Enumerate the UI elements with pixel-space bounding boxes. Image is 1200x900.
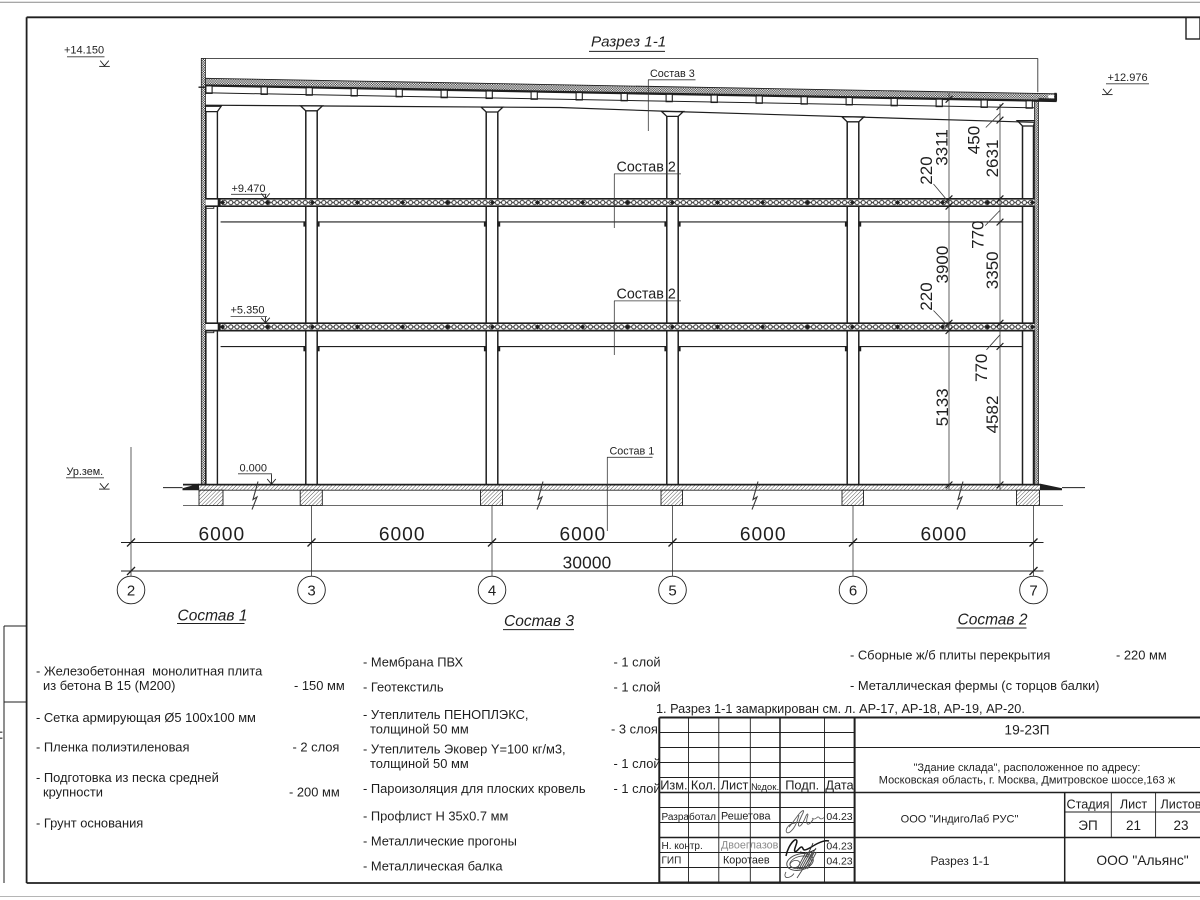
svg-text:- Утеплитель Эковер Y=100 кг/м: - Утеплитель Эковер Y=100 кг/м3,: [363, 742, 566, 757]
svg-text:770: 770: [969, 221, 988, 249]
svg-text:- Пароизоляция для плоских кро: - Пароизоляция для плоских кровель: [363, 781, 586, 796]
svg-text:- Геотекстиль: - Геотекстиль: [363, 680, 444, 695]
svg-text:из бетона В 15 (М200): из бетона В 15 (М200): [43, 678, 175, 693]
svg-text:220: 220: [917, 156, 936, 184]
svg-text:770: 770: [972, 354, 991, 382]
svg-text:30000: 30000: [563, 553, 612, 573]
svg-text:450: 450: [965, 126, 984, 154]
svg-text:Разрез 1-1: Разрез 1-1: [591, 34, 666, 51]
svg-text:- Профлист Н 35х0.7 мм: - Профлист Н 35х0.7 мм: [363, 809, 508, 824]
svg-text:2631: 2631: [983, 140, 1002, 178]
svg-text:Подп.: Подп.: [785, 777, 819, 792]
svg-text:- Пленка полиэтиленовая: - Пленка полиэтиленовая: [36, 740, 189, 755]
svg-text:ГИП: ГИП: [662, 855, 682, 866]
svg-text:6000: 6000: [198, 525, 245, 546]
svg-text:04.23: 04.23: [826, 855, 852, 867]
svg-text:- Металлическая балка: - Металлическая балка: [363, 859, 503, 874]
svg-text:- Металлические прогоны: - Металлические прогоны: [363, 834, 517, 849]
svg-text:- 1 слой: - 1 слой: [614, 680, 661, 695]
svg-text:- Железобетонная монолитная п: - Железобетонная монолитная плита: [36, 664, 263, 679]
svg-text:толщиной 50 мм: толщиной 50 мм: [370, 722, 469, 737]
svg-text:Ур.зем.: Ур.зем.: [67, 466, 104, 478]
svg-text:толщиной 50 мм: толщиной 50 мм: [370, 756, 469, 771]
svg-text:"Здание склада", расположенное: "Здание склада", расположенное по адресу…: [914, 762, 1141, 774]
svg-text:+12.976: +12.976: [1108, 72, 1148, 84]
svg-text:- Грунт основания: - Грунт основания: [36, 816, 143, 831]
svg-text:6000: 6000: [559, 525, 606, 546]
svg-text:21: 21: [1126, 818, 1141, 833]
svg-text:7: 7: [1029, 582, 1037, 599]
svg-text:Двоеглазов: Двоеглазов: [721, 840, 779, 852]
svg-text:5: 5: [668, 582, 676, 599]
svg-text:Разработал: Разработал: [662, 811, 717, 823]
svg-text:- 1 слой: - 1 слой: [614, 655, 661, 670]
svg-text:6000: 6000: [379, 525, 426, 546]
svg-text:Листов: Листов: [1161, 798, 1200, 812]
svg-text:Кол.: Кол.: [691, 777, 716, 792]
svg-text:Состав 2: Состав 2: [958, 612, 1028, 629]
svg-text:- Сборные ж/б плиты перекрытия: - Сборные ж/б плиты перекрытия: [850, 648, 1050, 663]
svg-text:- 3 слоя: - 3 слоя: [611, 722, 658, 737]
svg-text:Дата: Дата: [825, 777, 854, 792]
svg-text:0.000: 0.000: [240, 463, 268, 475]
svg-text:+9.470: +9.470: [232, 183, 266, 195]
svg-text:6: 6: [849, 582, 857, 599]
svg-text:Решетова: Решетова: [721, 810, 771, 822]
svg-text:Коротаев: Коротаев: [723, 855, 770, 867]
svg-text:Изм.: Изм.: [660, 777, 687, 792]
svg-text:- 2 слоя: - 2 слоя: [293, 740, 340, 755]
svg-text:19-23П: 19-23П: [1004, 723, 1049, 738]
svg-text:- 150 мм: - 150 мм: [294, 678, 345, 693]
svg-text:04.23: 04.23: [826, 811, 852, 823]
svg-text:№док.: №док.: [751, 782, 779, 793]
svg-text:- Сетка армирующая Ø5 100х100: - Сетка армирующая Ø5 100х100 мм: [36, 710, 256, 725]
svg-text:Лист: Лист: [721, 777, 749, 792]
svg-text:Состав 3: Состав 3: [504, 613, 574, 630]
svg-text:- Мембрана ПВХ: - Мембрана ПВХ: [363, 655, 464, 670]
svg-text:Н. контр.: Н. контр.: [662, 841, 703, 852]
svg-text:- 1 слой: - 1 слой: [614, 781, 661, 796]
svg-text:ООО "ИндигоЛаб РУС": ООО "ИндигоЛаб РУС": [901, 813, 1019, 825]
svg-text:04.23: 04.23: [826, 840, 852, 852]
svg-text:Состав 1: Состав 1: [610, 446, 655, 458]
svg-text:Разрез 1-1: Разрез 1-1: [931, 854, 990, 868]
svg-text:3350: 3350: [983, 251, 1002, 289]
svg-text:6000: 6000: [920, 525, 967, 546]
svg-text:220: 220: [917, 282, 936, 310]
svg-text:крупности: крупности: [43, 785, 103, 800]
svg-text:- Металлическая фермы (с торцо: - Металлическая фермы (с торцов балки): [850, 678, 1099, 693]
svg-text:1. Разрез 1-1 замаркирован см.: 1. Разрез 1-1 замаркирован см. л. АР-17,…: [656, 702, 1025, 716]
svg-text:Состав 2: Состав 2: [617, 159, 676, 175]
svg-text:Состав 1: Состав 1: [178, 608, 248, 625]
svg-text:+5.350: +5.350: [231, 305, 265, 317]
svg-text:5133: 5133: [933, 388, 952, 426]
svg-text:ЭП: ЭП: [1078, 818, 1097, 833]
svg-text:Состав 3: Состав 3: [650, 68, 695, 80]
svg-text:+14.150: +14.150: [64, 45, 104, 57]
svg-text:3900: 3900: [933, 246, 952, 284]
svg-text:4582: 4582: [983, 396, 1002, 434]
svg-text:6000: 6000: [740, 525, 787, 546]
svg-text:3: 3: [307, 582, 315, 599]
svg-text:ООО "Альянс": ООО "Альянс": [1096, 853, 1188, 868]
svg-text:23: 23: [1173, 818, 1188, 833]
svg-text:- 1 слой: - 1 слой: [614, 756, 661, 771]
svg-text:Московская область, г. Москва,: Московская область, г. Москва, Дмитровск…: [879, 775, 1176, 787]
svg-text:2: 2: [127, 582, 135, 599]
svg-text:4: 4: [488, 582, 496, 599]
svg-text:Стадия: Стадия: [1067, 798, 1110, 812]
svg-text:- Утеплитель ПЕНОПЛЭКС,: - Утеплитель ПЕНОПЛЭКС,: [363, 707, 528, 722]
svg-text:Лист: Лист: [1120, 798, 1148, 812]
svg-text:- Подготовка из песка средней: - Подготовка из песка средней: [36, 770, 219, 785]
svg-text:- 200 мм: - 200 мм: [289, 785, 340, 800]
svg-text:- 220 мм: - 220 мм: [1116, 648, 1167, 663]
svg-text:Состав 2: Состав 2: [617, 286, 676, 302]
